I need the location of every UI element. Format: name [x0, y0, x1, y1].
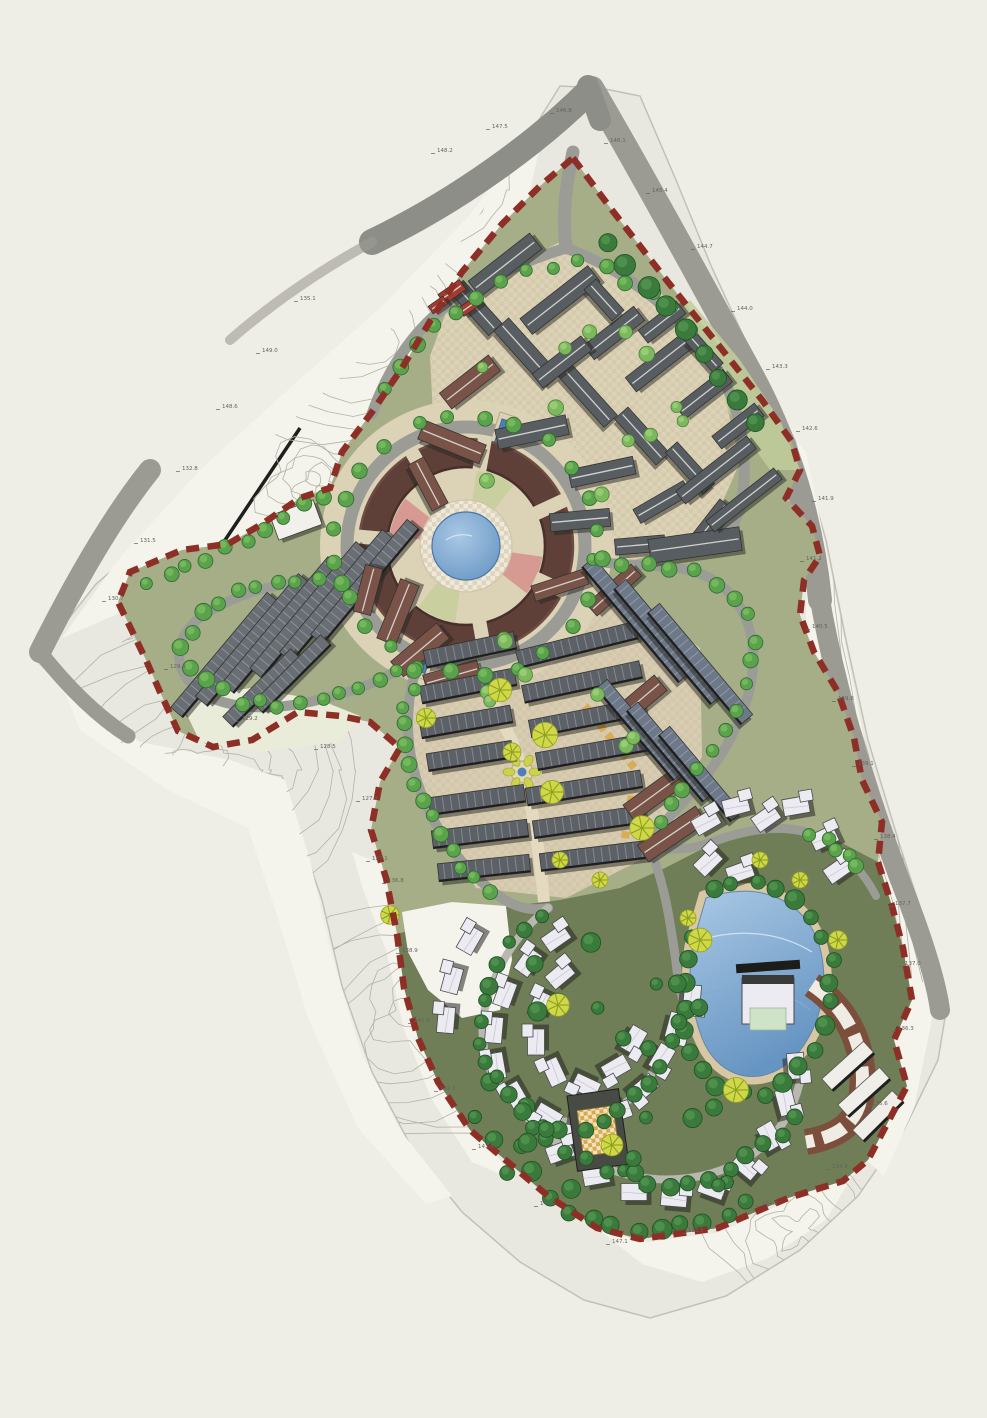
tree: [441, 411, 454, 424]
palm-tree: [688, 928, 712, 952]
tree: [727, 591, 743, 607]
tree: [581, 592, 596, 607]
tree: [751, 875, 765, 889]
tree: [312, 572, 326, 586]
tree: [352, 463, 368, 479]
tree: [719, 723, 733, 737]
tree: [668, 975, 686, 993]
tree: [433, 826, 449, 842]
tree: [622, 434, 634, 446]
tree: [498, 634, 513, 649]
elevation-label: 146.8: [556, 108, 572, 114]
elevation-label: 134.2: [762, 1201, 778, 1207]
tree: [185, 625, 200, 640]
tree: [722, 1208, 736, 1222]
tree: [338, 491, 354, 507]
palm-tree: [792, 872, 808, 888]
elevation-label: 140.9: [414, 1018, 430, 1024]
tree: [848, 858, 863, 873]
tree: [489, 957, 505, 973]
tree: [642, 557, 657, 572]
tree: [591, 688, 605, 702]
tree: [677, 415, 688, 426]
tree: [172, 639, 189, 656]
elevation-label: 147.1: [612, 1239, 628, 1245]
elevation-label: 128.5: [320, 744, 336, 750]
tree: [249, 581, 262, 594]
central-pond: [432, 512, 500, 580]
tree: [478, 1055, 492, 1069]
palm-tree: [829, 931, 848, 950]
tree: [661, 561, 677, 577]
tree: [178, 559, 191, 572]
tree: [804, 910, 819, 925]
tree: [293, 696, 307, 710]
tree: [767, 880, 784, 897]
tree: [683, 1108, 702, 1127]
elevation-label: 130.7: [108, 596, 124, 602]
tree: [746, 414, 764, 432]
tree: [518, 667, 533, 682]
tree: [517, 922, 533, 938]
tree: [820, 974, 838, 992]
tree: [741, 607, 754, 620]
tree: [571, 254, 584, 267]
tree: [807, 1043, 823, 1059]
tree: [397, 702, 409, 714]
tree: [644, 428, 658, 442]
tree: [164, 567, 179, 582]
elevation-label: 149.0: [262, 348, 278, 354]
elevation-label: 148.2: [437, 148, 453, 154]
elevation-label: 135.6: [872, 1101, 888, 1107]
tree: [477, 667, 493, 683]
tree: [773, 1073, 793, 1093]
elevation-label: 136.8: [388, 878, 404, 884]
tree: [416, 793, 432, 809]
tree: [609, 1102, 625, 1118]
tree: [500, 1086, 517, 1103]
tree: [494, 275, 508, 289]
elevation-label: 129.9: [170, 664, 186, 670]
tree: [737, 1147, 754, 1164]
elevation-label: 141.9: [818, 496, 834, 502]
elevation-label: 133.5: [688, 1228, 704, 1234]
palm-tree: [416, 708, 435, 727]
tree: [641, 1076, 658, 1093]
tree: [390, 665, 402, 677]
tree: [514, 1103, 532, 1121]
elevation-label: 129.2: [242, 716, 258, 722]
palm-tree: [488, 678, 512, 702]
palm-tree: [503, 743, 521, 761]
tree: [408, 683, 421, 696]
tree: [468, 871, 480, 883]
tree: [270, 701, 283, 714]
tree: [680, 1176, 695, 1191]
palm-tree: [532, 722, 557, 747]
tree: [829, 843, 843, 857]
tree: [730, 704, 744, 718]
clubhouse-roof-band: [742, 975, 794, 984]
elevation-label: 145.9: [540, 1201, 556, 1207]
tree: [478, 411, 493, 426]
tree: [690, 762, 703, 775]
tree: [803, 829, 816, 842]
tree: [594, 487, 609, 502]
tree: [827, 953, 842, 968]
tree: [401, 757, 417, 773]
tree: [709, 370, 726, 387]
tree: [581, 933, 601, 953]
tree: [559, 342, 572, 355]
elevation-label: 135.1: [300, 296, 316, 302]
tree: [479, 473, 494, 488]
tree: [357, 619, 372, 634]
fountain-water: [518, 768, 527, 777]
tree: [326, 522, 340, 536]
tree: [447, 843, 461, 857]
tree: [426, 809, 439, 822]
tree: [397, 716, 412, 731]
tree: [591, 1002, 603, 1014]
tree: [257, 522, 273, 538]
tree: [334, 575, 350, 591]
tree: [638, 277, 660, 299]
fountain-petal: [503, 768, 515, 776]
elevation-label: 136.3: [898, 1026, 914, 1032]
elevation-label: 142.1: [440, 1086, 456, 1092]
tree: [579, 1151, 593, 1165]
tree: [506, 417, 522, 433]
elevation-label: 138.9: [402, 948, 418, 954]
clubhouse-lawn: [750, 1008, 786, 1030]
tree: [469, 291, 484, 306]
tree: [352, 682, 365, 695]
tree: [140, 578, 152, 590]
tree: [785, 890, 805, 910]
tree: [342, 590, 357, 605]
tree: [547, 262, 559, 274]
palm-tree: [723, 1077, 748, 1102]
elevation-label: 138.4: [880, 834, 896, 840]
tree: [706, 880, 724, 898]
tree: [789, 1057, 807, 1075]
tree: [454, 862, 466, 874]
tree: [413, 416, 426, 429]
tree: [600, 259, 615, 274]
tree: [468, 1110, 481, 1123]
elevation-label: 137.7: [895, 901, 911, 907]
tree: [787, 1109, 803, 1125]
tree: [627, 731, 641, 745]
tree: [562, 1179, 581, 1198]
road: [588, 86, 600, 120]
tree: [639, 1111, 652, 1124]
elevation-label: 141.2: [806, 556, 822, 562]
tree: [675, 319, 696, 340]
tree: [814, 930, 828, 944]
tree: [653, 1060, 667, 1074]
tree: [503, 936, 516, 949]
tree: [565, 461, 579, 475]
elevation-label: 145.4: [652, 188, 668, 194]
tree: [385, 640, 397, 652]
tree: [695, 345, 713, 363]
tree: [215, 681, 230, 696]
tree: [671, 1014, 687, 1030]
tree: [662, 1178, 680, 1196]
tree: [627, 1164, 644, 1181]
palm-tree: [552, 852, 568, 868]
tree: [272, 575, 286, 589]
tree: [706, 744, 719, 757]
tree: [317, 693, 330, 706]
tree: [671, 401, 682, 412]
tree: [473, 1038, 486, 1051]
elevation-label: 131.5: [140, 538, 156, 544]
tree: [254, 694, 267, 707]
tree: [594, 551, 610, 567]
tree: [542, 433, 555, 446]
tree: [599, 234, 617, 252]
palm-tree: [601, 1134, 623, 1156]
tree: [480, 977, 498, 995]
tree: [597, 1114, 611, 1128]
tree: [641, 1041, 657, 1057]
tree: [639, 346, 655, 362]
tree: [614, 254, 636, 276]
tree: [625, 1151, 641, 1167]
tree: [626, 1086, 642, 1102]
tree: [656, 296, 676, 316]
tree: [709, 578, 725, 594]
palm-tree: [540, 780, 563, 803]
tree: [536, 646, 549, 659]
tree: [583, 325, 597, 339]
elevation-label: 143.8: [478, 1144, 494, 1150]
tree: [691, 999, 708, 1016]
tree: [616, 1031, 631, 1046]
elevation-label: 137.0: [905, 961, 921, 967]
tree: [665, 1034, 680, 1049]
elevation-label: 134.9: [832, 1164, 848, 1170]
tree: [538, 1122, 554, 1138]
tree: [449, 306, 463, 320]
elevation-label: 127.1: [372, 856, 388, 862]
master-plan-canvas: 148.2147.5146.8146.1145.4144.7144.0143.3…: [0, 0, 987, 1418]
tree: [590, 524, 603, 537]
tree: [694, 1061, 712, 1079]
tree: [687, 563, 701, 577]
tree: [483, 885, 498, 900]
tree: [740, 678, 752, 690]
tree: [477, 362, 488, 373]
tree: [566, 619, 580, 633]
tree: [198, 554, 213, 569]
tree: [654, 816, 667, 829]
road: [230, 242, 372, 340]
tree: [618, 276, 633, 291]
palm-tree: [592, 872, 608, 888]
tree: [373, 673, 388, 688]
elevation-label: 140.5: [812, 624, 828, 630]
tree: [614, 558, 629, 573]
tree: [558, 1145, 573, 1160]
tree: [332, 687, 345, 700]
tree: [407, 663, 422, 678]
tree: [823, 994, 838, 1009]
elevation-label: 143.3: [772, 364, 788, 370]
elevation-label: 146.1: [610, 138, 626, 144]
palm-tree: [680, 910, 696, 926]
tree: [680, 950, 698, 968]
tree: [242, 535, 255, 548]
tree: [705, 1099, 722, 1116]
elevation-label: 132.8: [182, 466, 198, 472]
tree: [619, 325, 633, 339]
tree: [650, 978, 662, 990]
tree: [212, 597, 226, 611]
palm-tree: [630, 816, 655, 841]
tree: [327, 555, 342, 570]
master-plan-stage: 148.2147.5146.8146.1145.4144.7144.0143.3…: [0, 0, 987, 1418]
tree: [479, 994, 492, 1007]
tree: [443, 663, 459, 679]
tree: [681, 1044, 698, 1061]
tree: [775, 1128, 790, 1143]
tree: [724, 1162, 739, 1177]
tree: [674, 782, 690, 798]
tree: [724, 877, 738, 891]
tree: [758, 1088, 774, 1104]
tree: [815, 1016, 835, 1036]
south-clubhouse: [567, 1089, 629, 1171]
tree: [548, 400, 564, 416]
tree: [712, 1179, 725, 1192]
tree: [231, 583, 245, 597]
tree: [236, 697, 250, 711]
tree: [407, 778, 421, 792]
tree: [748, 635, 763, 650]
tree: [578, 1122, 594, 1138]
tree: [475, 1015, 489, 1029]
tree: [535, 910, 548, 923]
elevation-label: 142.6: [802, 426, 818, 432]
tree: [198, 671, 215, 688]
elevation-label: 127.8: [362, 796, 378, 802]
tree: [743, 652, 758, 667]
elevation-label: 139.8: [838, 696, 854, 702]
tree: [277, 512, 290, 525]
tree: [520, 264, 532, 276]
tree: [664, 796, 679, 811]
elevation-label: 144.7: [697, 244, 713, 250]
tree: [195, 603, 212, 620]
tree: [738, 1194, 753, 1209]
tree: [289, 576, 301, 588]
tree: [528, 1002, 547, 1021]
tree: [600, 1165, 614, 1179]
elevation-label: 148.6: [222, 404, 238, 410]
tree: [526, 955, 543, 972]
tree: [518, 1133, 537, 1152]
palm-tree: [547, 994, 570, 1017]
tree: [490, 1070, 504, 1084]
tree: [706, 1077, 725, 1096]
elevation-label: 147.5: [492, 124, 508, 130]
palm-tree: [752, 852, 768, 868]
elevation-label: 144.0: [737, 306, 753, 312]
elevation-label: 139.1: [858, 761, 874, 767]
tree: [727, 390, 747, 410]
tree: [755, 1135, 771, 1151]
tree: [377, 440, 391, 454]
